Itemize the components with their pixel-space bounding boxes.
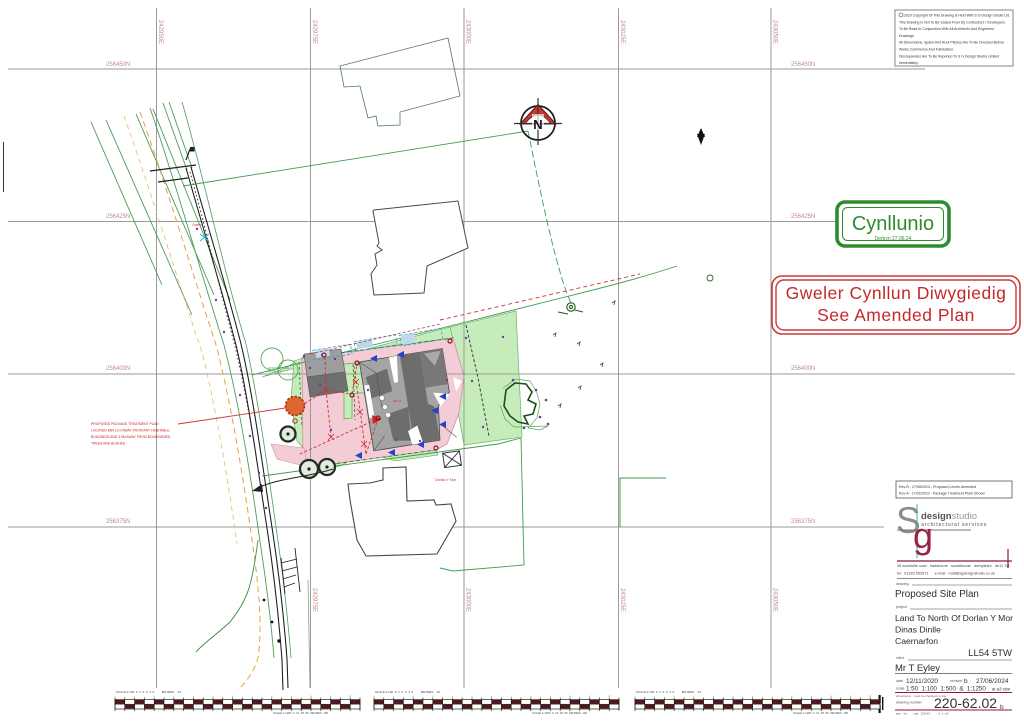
- svg-text:Rev A - 17/02/2022 - Package T: Rev A - 17/02/2022 - Package Treatment P…: [899, 492, 985, 496]
- svg-text:TREES AND BUSHES: TREES AND BUSHES: [91, 442, 126, 446]
- svg-text:drawing number: drawing number: [896, 701, 923, 705]
- svg-text:See Amended Plan: See Amended Plan: [817, 305, 975, 325]
- svg-text:This Drawing Is Not To Be Scal: This Drawing Is Not To Be Scaled From By…: [899, 20, 1006, 24]
- svg-text:Rev B - 27/08/2024 - Proposed: Rev B - 27/08/2024 - Proposed Levels Ame…: [899, 485, 976, 489]
- svg-text:243050E: 243050E: [772, 588, 778, 612]
- svg-text:All Dimensions, Spans And Roof: All Dimensions, Spans And Roof Pitches A…: [899, 41, 1004, 45]
- svg-text:Immediately.: Immediately.: [899, 61, 919, 65]
- svg-text:scale: scale: [896, 687, 904, 691]
- svg-text:220-62.02: 220-62.02: [934, 695, 997, 711]
- svg-text:243050E: 243050E: [772, 20, 778, 44]
- svg-text:Discrepancies Are To Be Report: Discrepancies Are To Be Reported To S G …: [899, 54, 999, 58]
- svg-text:Mr T Eyley: Mr T Eyley: [895, 663, 940, 674]
- svg-text:PROPOSED PACKAGE TREATMENT PLA: PROPOSED PACKAGE TREATMENT PLAN: [91, 422, 159, 426]
- svg-text:date: date: [896, 679, 903, 683]
- svg-text:256450N: 256450N: [106, 62, 130, 68]
- svg-text:256425N: 256425N: [106, 214, 130, 220]
- svg-text:242975E: 242975E: [311, 20, 317, 44]
- svg-text:g: g: [913, 515, 933, 556]
- svg-text:242975E: 242975E: [311, 588, 317, 612]
- svg-text:revision: revision: [950, 679, 962, 683]
- svg-text:Caernarfon: Caernarfon: [895, 636, 938, 646]
- svg-text:243000E: 243000E: [465, 20, 471, 44]
- svg-text:256375N: 256375N: [791, 519, 815, 525]
- svg-text:pen sh cad 220-62: pen sh cad 220-62 d 1 a3: [896, 712, 949, 716]
- svg-text:Dinas Dinlle: Dinas Dinlle: [895, 625, 941, 635]
- svg-text:Gwern: Gwern: [192, 223, 202, 227]
- svg-text:256425N: 256425N: [791, 214, 815, 220]
- svg-text:Cynllunio: Cynllunio: [852, 213, 934, 235]
- svg-text:256400N: 256400N: [106, 366, 130, 372]
- svg-text:243025E: 243025E: [619, 588, 625, 612]
- svg-text:27/06/2024: 27/06/2024: [976, 678, 1009, 685]
- svg-text:N: N: [533, 117, 542, 132]
- svg-text:at a3 size: at a3 size: [992, 687, 1011, 692]
- svg-text:243000E: 243000E: [465, 588, 471, 612]
- svg-text:1:50 1:100 1:500 & 1:1250: 1:50 1:100 1:500 & 1:1250: [906, 686, 986, 693]
- svg-text:client: client: [896, 656, 904, 660]
- svg-text:Works Commence And Fabrication: Works Commence And Fabrication.: [899, 48, 954, 52]
- svg-text:To Be Read In Conjunction With: To Be Read In Conjunction With All Archi…: [899, 27, 995, 31]
- svg-text:30 woodville road hartshorne: 30 woodville road hartshorne swadlincote…: [897, 564, 1010, 568]
- svg-text:Derbyn 27.06.24: Derbyn 27.06.24: [875, 236, 912, 242]
- svg-text:tel: 01283 552671 e-mail: tel: 01283 552671 e-mail - mail@sgdesign…: [897, 572, 995, 576]
- svg-text:Gweler Cynllun Diwygiedig: Gweler Cynllun Diwygiedig: [786, 283, 1007, 303]
- svg-text:RETAINED: RETAINED: [268, 370, 282, 374]
- svg-text:242950E: 242950E: [157, 20, 163, 44]
- svg-text:drawing: drawing: [896, 582, 909, 586]
- svg-text:Dorlan Y Mor: Dorlan Y Mor: [435, 478, 457, 482]
- svg-text:BUILDINGS AND 3.0M AWAY FROM B: BUILDINGS AND 3.0M AWAY FROM BOUNDARIES,: [91, 435, 171, 439]
- svg-text:project: project: [896, 605, 907, 609]
- svg-text:b: b: [964, 678, 968, 685]
- svg-text:HELIX: HELIX: [393, 399, 402, 403]
- svg-text:Proposed Site Plan: Proposed Site Plan: [895, 589, 979, 600]
- svg-text:256450N: 256450N: [791, 62, 815, 68]
- svg-text:Drawings.: Drawings.: [899, 34, 915, 38]
- svg-text:12/11/2020: 12/11/2020: [906, 678, 938, 685]
- svg-text:2020 Copyright Of This Drawing: 2020 Copyright Of This Drawing Is Held W…: [904, 14, 1010, 18]
- svg-text:256375N: 256375N: [106, 519, 130, 525]
- svg-text:LOCATED MIN 10.0 AWAY FROM ANY: LOCATED MIN 10.0 AWAY FROM ANY HABITABLE: [91, 429, 170, 433]
- svg-text:256400N: 256400N: [791, 366, 815, 372]
- svg-text:243025E: 243025E: [619, 20, 625, 44]
- svg-text:Land To North Of Dorlan Y Mor: Land To North Of Dorlan Y Mor: [895, 613, 1013, 623]
- svg-text:LL54 5TW: LL54 5TW: [968, 648, 1012, 659]
